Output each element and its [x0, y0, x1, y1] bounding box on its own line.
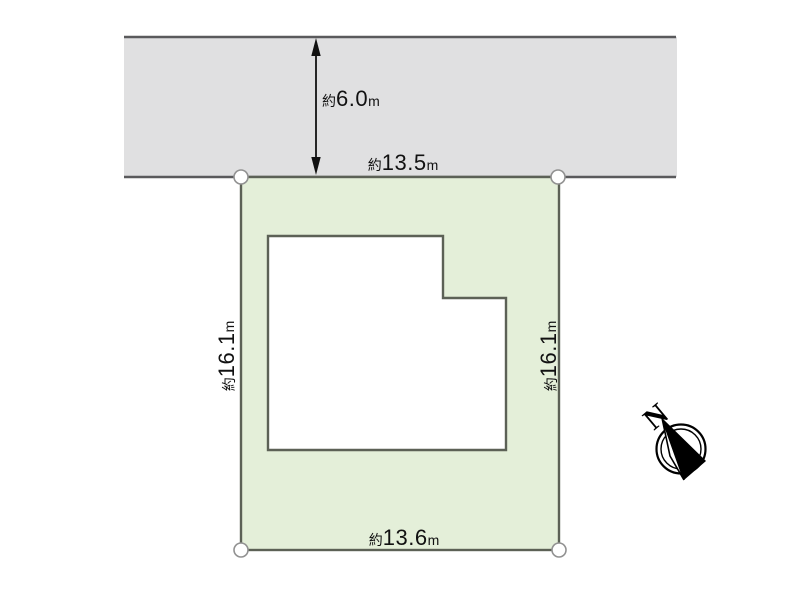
frontage-bottom-label: 約13.6m — [369, 527, 440, 549]
road-width-label: 約6.0m — [322, 88, 380, 110]
label-prefix: 約 — [322, 93, 336, 109]
label-unit: m — [427, 157, 439, 173]
label-unit: m — [543, 321, 559, 333]
corner-marker-top-right — [551, 170, 565, 184]
label-unit: m — [428, 532, 440, 548]
corner-marker-top-left — [234, 170, 248, 184]
site-plan-canvas: N — [0, 0, 800, 600]
label-value: 13.6 — [383, 525, 428, 550]
frontage-top-label: 約13.5m — [368, 152, 439, 174]
label-value: 13.5 — [382, 150, 427, 175]
label-prefix: 約 — [368, 157, 382, 173]
label-prefix: 約 — [543, 377, 559, 391]
label-value: 16.1 — [214, 332, 239, 377]
compass-icon: N — [637, 397, 706, 480]
site-plan-diagram: N 約6.0m 約13.5m 約16.1m 約16.1m 約13.6m — [0, 0, 800, 600]
label-prefix: 約 — [369, 532, 383, 548]
depth-left-label: 約16.1m — [216, 321, 238, 392]
corner-marker-bottom-right — [552, 543, 566, 557]
label-unit: m — [221, 321, 237, 333]
label-unit: m — [368, 93, 380, 109]
label-prefix: 約 — [221, 377, 237, 391]
label-value: 6.0 — [336, 86, 368, 111]
depth-right-label: 約16.1m — [538, 321, 560, 392]
corner-marker-bottom-left — [234, 543, 248, 557]
label-value: 16.1 — [536, 332, 561, 377]
